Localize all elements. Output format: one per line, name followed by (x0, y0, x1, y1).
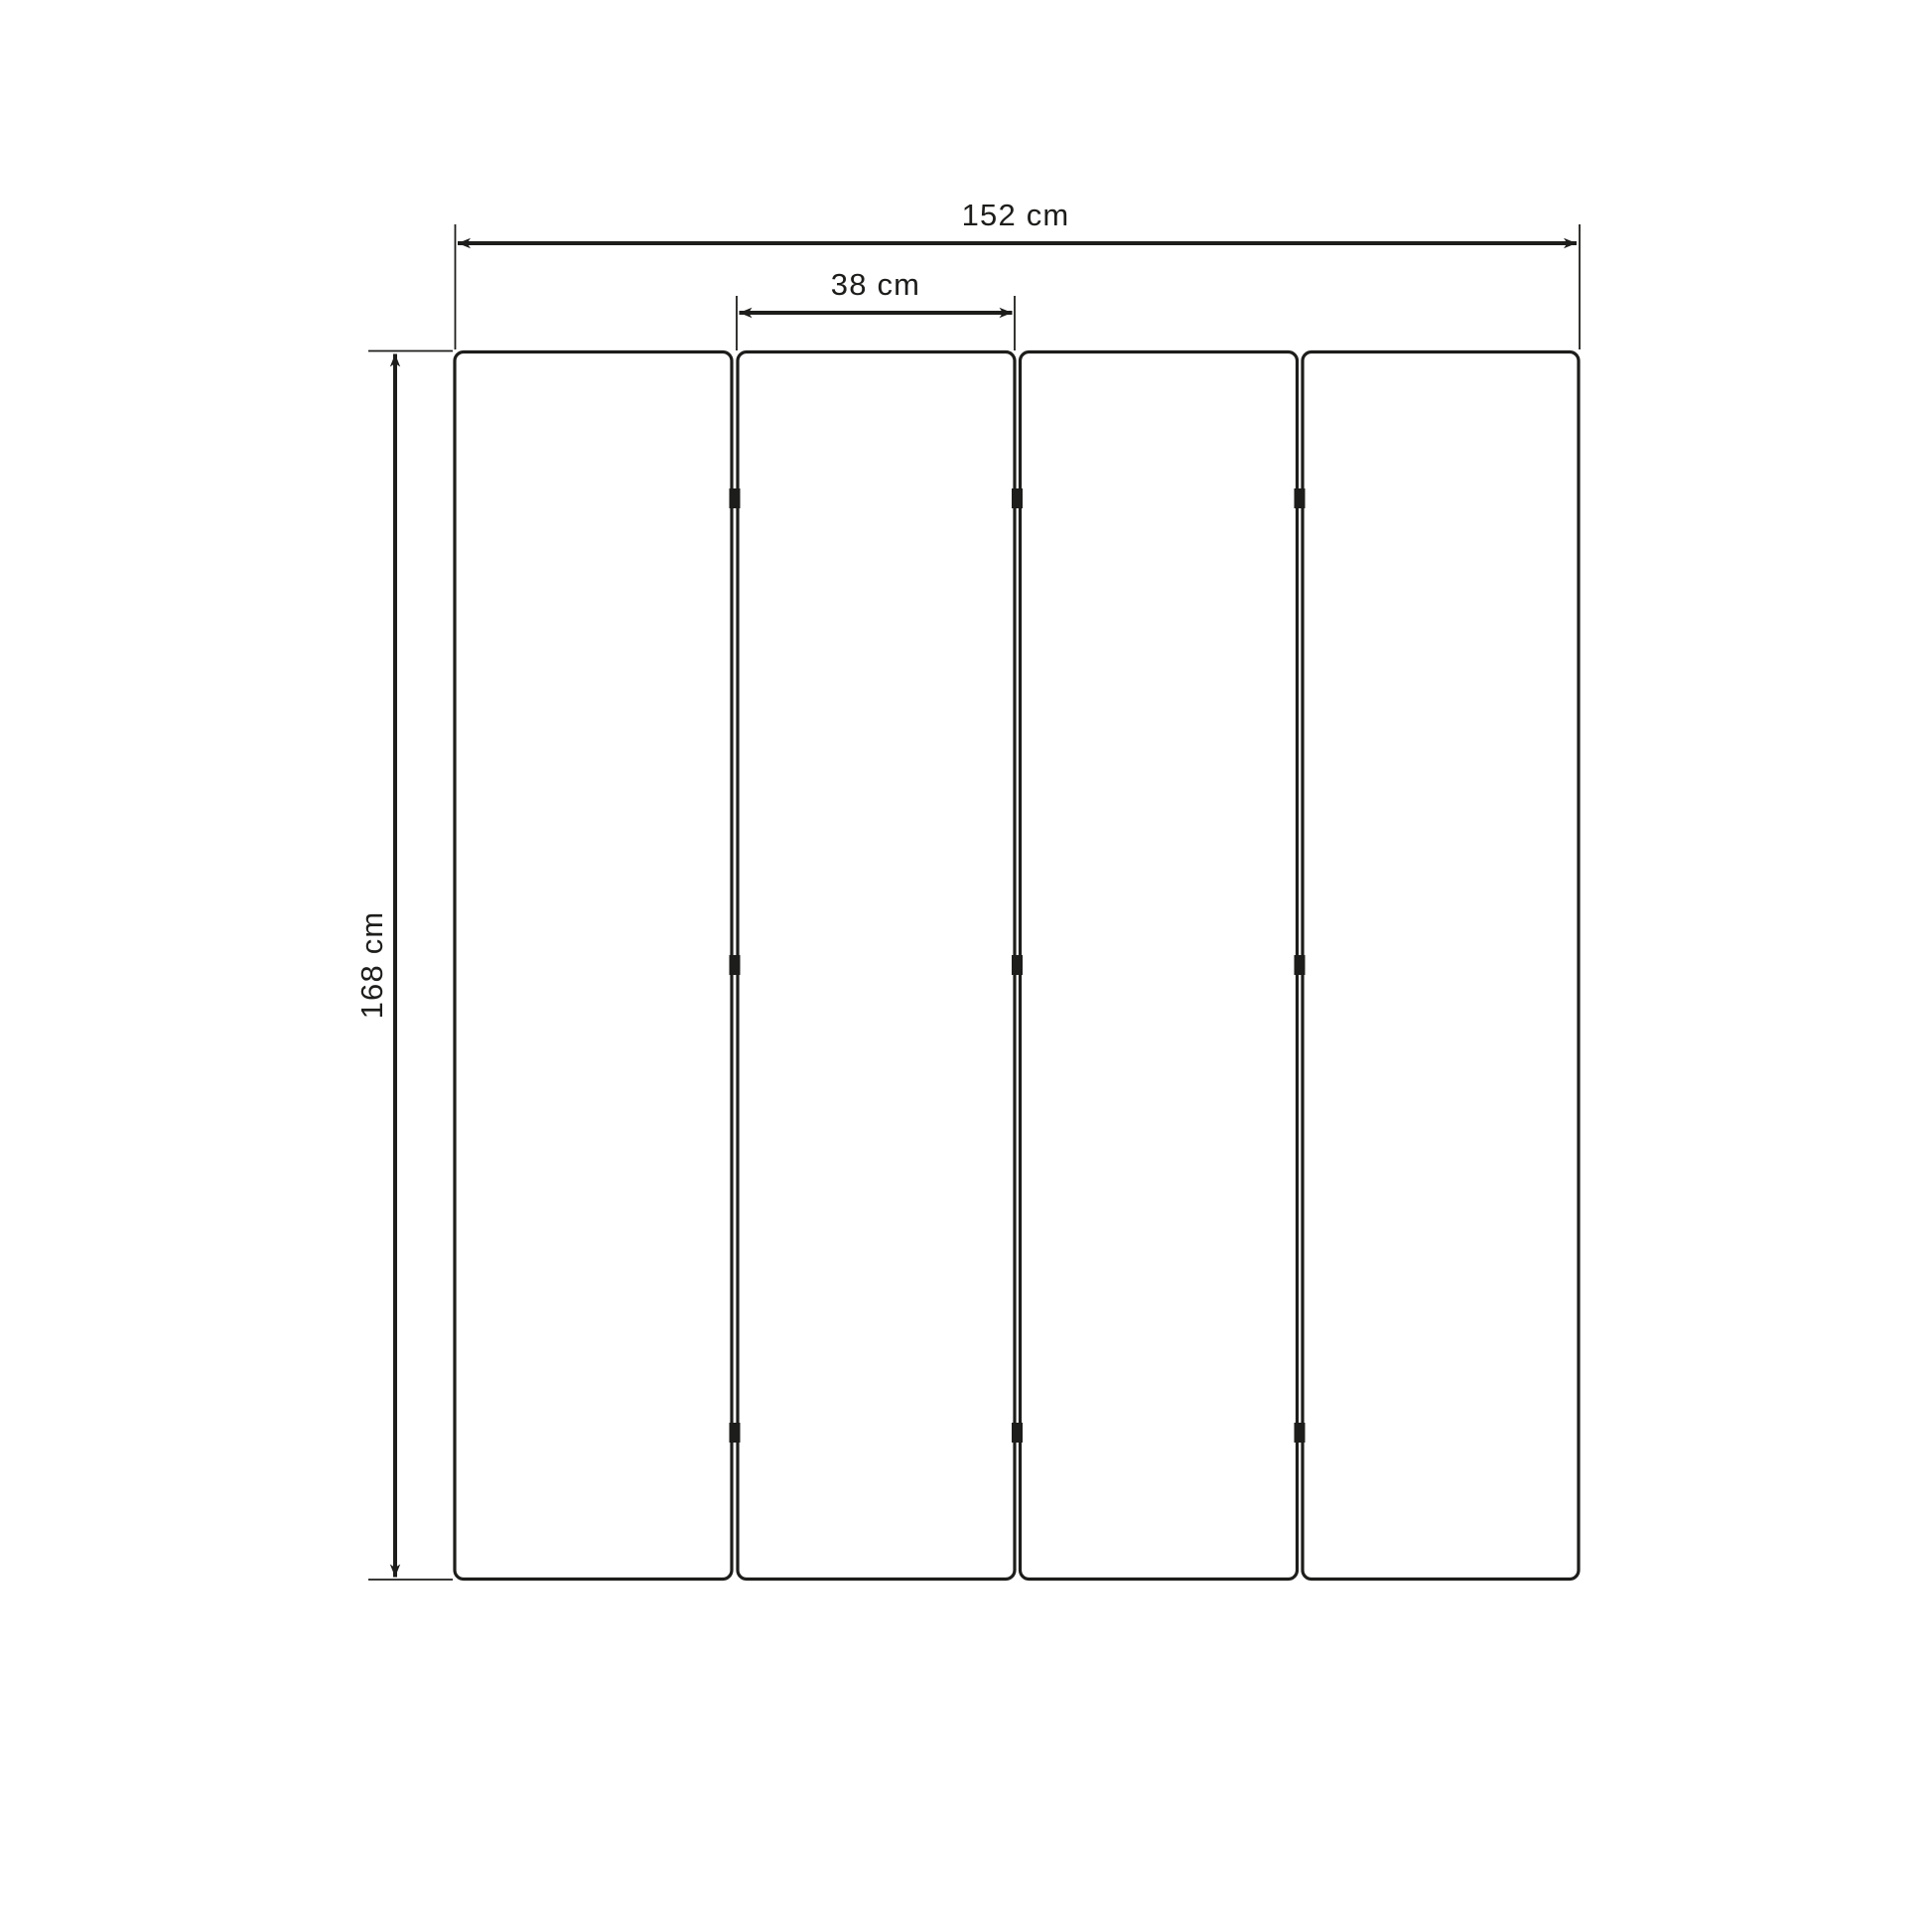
diagram-canvas: 152 cm 38 cm 168 cm (0, 0, 1932, 1932)
hinge-icon (1012, 1423, 1023, 1443)
dimension-label-height: 168 cm (354, 911, 389, 1020)
dimension-total-width: 152 cm (456, 198, 1581, 349)
product-dimension-diagram: 152 cm 38 cm 168 cm (0, 0, 1932, 1932)
hinge-icon (1295, 1423, 1306, 1443)
hinge-icon (730, 1423, 741, 1443)
hinge-icon (730, 488, 741, 508)
hinge-icon (1012, 955, 1023, 975)
dimension-label-total-width: 152 cm (962, 198, 1070, 232)
panel-2 (738, 352, 1015, 1580)
panel-4 (1303, 352, 1579, 1580)
dimension-label-panel-width: 38 cm (831, 267, 920, 302)
hinge-icon (730, 955, 741, 975)
hinge-icon (1012, 488, 1023, 508)
dimension-panel-width: 38 cm (737, 267, 1015, 350)
panel-3 (1021, 352, 1298, 1580)
hinge-icon (1295, 955, 1306, 975)
dimension-height: 168 cm (354, 351, 453, 1581)
hinge-icon (1295, 488, 1306, 508)
panel-1 (455, 352, 732, 1580)
